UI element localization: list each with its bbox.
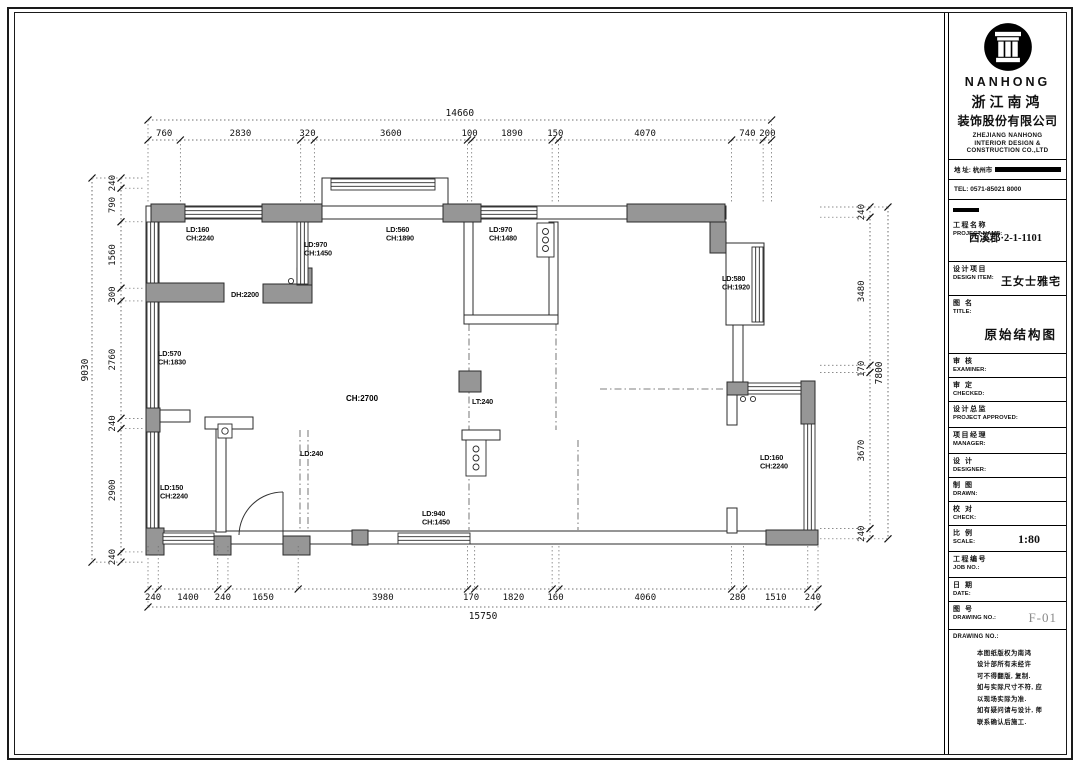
dimension-label: 3670	[857, 440, 867, 462]
note-line: 以现场实际为准.	[977, 694, 1062, 706]
dimension-label: 200	[759, 129, 775, 139]
row-label-cn: 日 期	[953, 580, 1066, 590]
row-label-cn: 设计总监	[953, 404, 1066, 414]
dim-tick	[118, 415, 125, 422]
wall-segment	[158, 410, 190, 422]
dimension-total-label: 7800	[874, 361, 885, 384]
nanhong-logo-icon	[982, 21, 1034, 73]
row-project-approved-: 设计总监PROJECT APPROVED:	[949, 402, 1066, 428]
window-symbol	[147, 222, 158, 283]
annotation-label: LD:160CH:2240	[186, 225, 214, 243]
dimension-label: 240	[145, 593, 161, 603]
row-value: 1:80	[1018, 532, 1040, 547]
dimension-total-label: 15750	[469, 611, 498, 622]
annotation-label: LD:970CH:1450	[304, 240, 332, 258]
row-title-: 图 名TITLE:原始结构图	[949, 296, 1066, 354]
brand-chinese-line2: 装饰股份有限公司	[949, 112, 1066, 129]
note-line: 可不得翻版, 复制.	[977, 671, 1062, 683]
structural-wall	[214, 536, 231, 555]
row-label-en: MANAGER:	[953, 441, 1066, 447]
row-label-en: PROJECT APPROVED:	[953, 415, 1066, 421]
row-label: 制 图DRAWN:	[949, 478, 1066, 497]
note-line: 如有疑问请与设计, 师	[977, 705, 1062, 717]
annotation-label: LD:970CH:1480	[489, 225, 517, 243]
row-value: F-01	[1028, 610, 1057, 626]
dimension-label: 240	[857, 526, 867, 542]
dimension-label: 170	[857, 361, 867, 377]
row-manager-: 项目经理MANAGER:	[949, 428, 1066, 454]
dimension-label: 1650	[252, 593, 274, 603]
dim-tick	[177, 137, 184, 144]
row-label: 设计总监PROJECT APPROVED:	[949, 402, 1066, 421]
row-label-en: TITLE:	[953, 309, 1066, 315]
wall-segment	[216, 424, 226, 532]
structural-wall	[766, 530, 818, 545]
row-label-en: DATE:	[953, 591, 1066, 597]
row-drawn-: 制 图DRAWN:	[949, 478, 1066, 502]
structural-wall	[146, 528, 164, 555]
dimension-label: 280	[729, 593, 745, 603]
dimension-total-label: 9030	[80, 358, 91, 381]
dimension-label: 240	[857, 204, 867, 220]
row-project-name-: 工程名称PROJECT NAME:西溪郡·2-1-1101	[949, 200, 1066, 262]
row-label: 日 期DATE:	[949, 578, 1066, 597]
dimension-label: 240	[108, 415, 118, 431]
wall-segment	[462, 430, 500, 440]
row-label-cn: 制 图	[953, 480, 1066, 490]
structural-wall	[727, 382, 748, 395]
dimension-label: 2830	[230, 129, 252, 139]
note-line: 本图纸版权为南鸿	[977, 648, 1062, 660]
row-label: 图 名TITLE:	[949, 296, 1066, 315]
floor-plan: LD:160CH:2240LD:970CH:1450LD:560CH:1890L…	[0, 0, 940, 767]
tel-row: TEL: 0571-85021 8000	[949, 180, 1066, 200]
note-line: 联系确认后施工.	[977, 717, 1062, 729]
annotation-label: LD:560CH:1890	[386, 225, 414, 243]
row-value: 王女士雅宅	[1001, 273, 1061, 289]
dim-tick	[867, 369, 874, 376]
row-scale-: 比 例SCALE:1:80	[949, 526, 1066, 552]
structural-wall	[146, 283, 224, 302]
row-label-en: SCALE:	[953, 539, 1066, 545]
window-symbol	[163, 533, 214, 544]
row-examiner-: 审 核EXAMINER:	[949, 354, 1066, 378]
notes-label: DRAWING NO.:	[953, 634, 1062, 640]
dimension-label: 160	[547, 593, 563, 603]
brand-en-line3: CONSTRUCTION CO.,LTD	[949, 147, 1066, 155]
dimension-label: 740	[739, 129, 755, 139]
row-label-cn: 审 定	[953, 380, 1066, 390]
row-value: 原始结构图	[984, 324, 1057, 343]
window-symbol	[331, 179, 435, 190]
structural-wall	[263, 284, 312, 303]
brand-chinese-line1: 浙江南鸿	[949, 92, 1066, 112]
row-label-cn: 工程编号	[953, 554, 1066, 564]
row-label-cn: 图 名	[953, 298, 1066, 308]
wall-segment	[727, 508, 737, 533]
pipe-circle	[750, 396, 755, 401]
annotation-label: CH:2700	[346, 394, 379, 403]
dimension-label: 1510	[765, 593, 787, 603]
row-label-en: EXAMINER:	[953, 367, 1066, 373]
dimension-label: 100	[461, 129, 477, 139]
row-label-en: DESIGNER:	[953, 467, 1066, 473]
duct-circle	[222, 428, 228, 434]
dimension-label: 240	[108, 175, 118, 191]
dimension-label: 170	[463, 593, 479, 603]
duct-circle	[543, 229, 549, 235]
duct-circle	[473, 455, 479, 461]
dimension-label: 240	[108, 549, 118, 565]
row-label-cn: 工程名称	[953, 220, 1066, 230]
structural-wall	[151, 204, 185, 222]
row-label: 审 定CHECKED:	[949, 378, 1066, 397]
duct-circle	[543, 237, 549, 243]
dimension-label: 2900	[108, 479, 118, 501]
window-symbol	[147, 302, 158, 408]
structural-wall	[459, 371, 481, 392]
window-symbol	[147, 432, 158, 528]
row-label-en: JOB NO.:	[953, 565, 1066, 571]
address-row: 地 址: 杭州市	[949, 160, 1066, 180]
structural-wall	[801, 381, 815, 424]
dimension-total-label: 14660	[446, 108, 475, 119]
dimension-label: 4070	[634, 129, 656, 139]
structural-wall	[710, 222, 726, 253]
row-label-en: DRAWN:	[953, 491, 1066, 497]
note-line: 如与实际尺寸不符, 应	[977, 682, 1062, 694]
brand-en-line2: INTERIOR DESIGN &	[949, 140, 1066, 148]
duct-circle	[473, 464, 479, 470]
row-designer-: 设 计DESIGNER:	[949, 454, 1066, 478]
window-symbol	[804, 424, 815, 530]
dimension-label: 1560	[108, 244, 118, 266]
notes-block: DRAWING NO.: 本图纸版权为南鸿设计部所有未经许可不得翻版, 复制.如…	[949, 630, 1066, 729]
structural-wall	[443, 204, 481, 222]
dimension-label: 300	[108, 286, 118, 302]
cad-drawing-sheet: { "titleblock": { "brand": { "logo": "co…	[0, 0, 1080, 767]
row-label: 比 例SCALE:	[949, 526, 1066, 545]
door-swing	[239, 492, 283, 535]
brand-block: NANHONG 浙江南鸿 装饰股份有限公司 ZHEJIANG NANHONG I…	[949, 13, 1066, 160]
row-label-en: CHECKED:	[953, 391, 1066, 397]
dimension-label: 3600	[380, 129, 402, 139]
row-label: 校 对CHECK:	[949, 502, 1066, 521]
dimension-label: 3480	[857, 280, 867, 302]
duct-circle	[473, 446, 479, 452]
dimension-label: 320	[299, 129, 315, 139]
notes-lines: 本图纸版权为南鸿设计部所有未经许可不得翻版, 复制.如与实际尺寸不符, 应以现场…	[953, 648, 1062, 729]
brand-name: NANHONG	[949, 75, 1066, 89]
row-drawing-no--: 图 号DRAWING NO.:F-01	[949, 602, 1066, 630]
structural-wall	[352, 530, 368, 545]
row-label: 设 计DESIGNER:	[949, 454, 1066, 473]
row-label-cn: 设 计	[953, 456, 1066, 466]
door-opening	[240, 532, 282, 543]
row-label-cn: 审 核	[953, 356, 1066, 366]
row-label-en: CHECK:	[953, 515, 1066, 521]
wall-segment	[464, 315, 558, 324]
annotation-label: DH:2200	[231, 290, 259, 299]
dimension-label: 1400	[177, 593, 199, 603]
structural-wall	[627, 204, 725, 222]
row-job--no--: 工程编号JOB NO.:	[949, 552, 1066, 578]
window-symbol	[752, 247, 763, 322]
row-label-cn: 校 对	[953, 504, 1066, 514]
annotation-label: LD:940CH:1450	[422, 509, 450, 527]
structural-wall	[146, 408, 160, 432]
pipe-circle	[288, 278, 293, 283]
row-label: 工程编号JOB NO.:	[949, 552, 1066, 571]
wall-segment	[464, 222, 473, 322]
dimension-label: 150	[547, 129, 563, 139]
dimension-label: 1890	[501, 129, 523, 139]
window-symbol	[748, 383, 801, 394]
annotation-label: LD:570CH:1830	[158, 349, 186, 367]
brand-en-line1: ZHEJIANG NANHONG	[949, 132, 1066, 140]
annotation-label: LD:240	[300, 449, 323, 458]
row-check-: 校 对CHECK:	[949, 502, 1066, 526]
annotation-label: LD:150CH:2240	[160, 483, 188, 501]
dimension-label: 240	[215, 593, 231, 603]
row-checked-: 审 定CHECKED:	[949, 378, 1066, 402]
brand-english: ZHEJIANG NANHONG INTERIOR DESIGN & CONST…	[949, 132, 1066, 155]
dimension-label: 790	[108, 197, 118, 213]
duct-circle	[543, 246, 549, 252]
window-symbol	[185, 207, 262, 218]
title-block: NANHONG 浙江南鸿 装饰股份有限公司 ZHEJIANG NANHONG I…	[948, 13, 1066, 754]
annotation-label: LT:240	[472, 397, 493, 406]
structural-wall	[262, 204, 322, 222]
window-symbol	[481, 207, 537, 218]
dimension-label: 240	[805, 593, 821, 603]
annotation-label: LD:160CH:2240	[760, 453, 788, 471]
row-date-: 日 期DATE:	[949, 578, 1066, 602]
window-symbol	[398, 533, 470, 544]
structural-wall	[283, 536, 310, 555]
redacted-bar	[953, 208, 979, 212]
dimension-label: 1820	[503, 593, 525, 603]
dimension-label: 3980	[372, 593, 394, 603]
row-label: 审 核EXAMINER:	[949, 354, 1066, 373]
row-label-cn: 比 例	[953, 528, 1066, 538]
row-design-item-: 设计项目DESIGN ITEM:王女士雅宅	[949, 262, 1066, 296]
dimension-label: 760	[156, 129, 172, 139]
dimension-label: 2760	[108, 349, 118, 371]
title-block-rows: 工程名称PROJECT NAME:西溪郡·2-1-1101设计项目DESIGN …	[949, 200, 1066, 630]
row-value: 西溪郡·2-1-1101	[949, 230, 1062, 245]
wall-segment	[733, 325, 743, 385]
note-line: 设计部所有未经许	[977, 659, 1062, 671]
address-redacted-bar	[995, 167, 1061, 172]
row-label: 项目经理MANAGER:	[949, 428, 1066, 447]
pipe-circle	[740, 396, 745, 401]
row-label-cn: 项目经理	[953, 430, 1066, 440]
address-label: 地 址: 杭州市	[954, 164, 992, 174]
wall-segment	[727, 395, 737, 425]
dimension-label: 4060	[634, 593, 656, 603]
